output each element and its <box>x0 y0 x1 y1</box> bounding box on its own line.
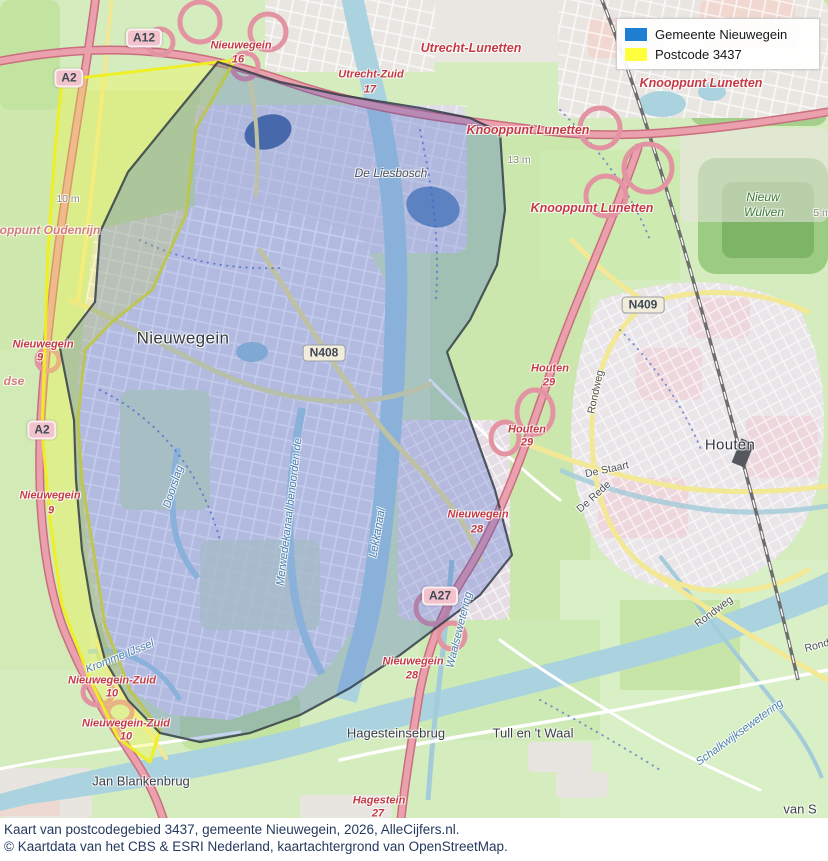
label-knooppunt-lunetten-1: Knooppunt Lunetten <box>640 77 763 90</box>
exit-nieuwegein-9b: Nieuwegein <box>19 491 80 502</box>
map-label-layer: A12A2A2A27N408N409Nieuwegein16Utrecht-Zu… <box>0 0 828 818</box>
label-knooppunt-lunetten-2: Knooppunt Lunetten <box>467 124 590 137</box>
map-canvas[interactable]: A12A2A2A27N408N409Nieuwegein16Utrecht-Zu… <box>0 0 828 818</box>
city-houten: Houten <box>705 438 755 453</box>
elev-5m: 5 m <box>813 208 828 219</box>
gemeente-color-swatch <box>625 28 647 41</box>
exit-utrecht-zuid: Utrecht-Zuid <box>338 70 403 81</box>
town-tull-en-t-waal: Tull en 't Waal <box>493 727 574 740</box>
map-attribution: Kaart van postcodegebied 3437, gemeente … <box>0 818 828 861</box>
exit-nieuwegein-9a: Nieuwegein <box>12 340 73 351</box>
exit-utrecht-zuid-nr: 17 <box>364 85 376 96</box>
shield-a27: A27 <box>422 587 458 606</box>
elev-13m: 13 m <box>507 155 530 166</box>
water-schalkwijksewetering: Schalkwijksewetering <box>694 698 785 768</box>
exit-houten-29b: Houten <box>508 425 546 436</box>
exit-nieuwegein-28b: Nieuwegein <box>382 657 443 668</box>
gemeente-legend-label: Gemeente Nieuwegein <box>655 27 787 42</box>
exit-nieuwegein-zuid-10a-nr: 10 <box>106 689 118 700</box>
exit-nieuwegein-28a: Nieuwegein <box>447 510 508 521</box>
exit-houten-29b-nr: 29 <box>521 438 533 449</box>
shield-a2-mid: A2 <box>27 421 56 440</box>
water-kromme-ijssel: Kromme IJssel <box>84 638 156 675</box>
exit-nieuwegein-9a-nr: 9 <box>37 353 43 364</box>
legend-row-postcode: Postcode 3437 <box>625 44 811 64</box>
label-knooppunt-oudenrijn: oppunt Oudenrijn <box>0 224 100 236</box>
postcode-legend-label: Postcode 3437 <box>655 47 742 62</box>
label-knooppunt-lunetten-3: Knooppunt Lunetten <box>531 202 654 215</box>
street-rondweg-1: Rondweg <box>586 369 605 415</box>
wood-nieuw-wulven-1: Nieuw <box>746 191 779 203</box>
map-legend: Gemeente Nieuwegein Postcode 3437 <box>616 18 820 70</box>
shield-n408: N408 <box>303 345 346 362</box>
wood-nieuw-wulven-2: Wulven <box>744 206 784 218</box>
town-hagesteinsebrug: Hagesteinsebrug <box>347 727 445 740</box>
water-doorslag: Doorslag <box>162 464 186 509</box>
water-waalsewetering: Waalsewetering <box>445 591 475 669</box>
elev-10m: 10 m <box>56 194 79 205</box>
water-merwedekanaal: Merwedekanaal benoorden de <box>275 438 304 587</box>
street-rondweg-2: Rondweg <box>693 594 735 629</box>
exit-nieuwegein-zuid-10b: Nieuwegein-Zuid <box>82 719 170 730</box>
postcode-color-swatch <box>625 48 647 61</box>
legend-row-gemeente: Gemeente Nieuwegein <box>625 24 811 44</box>
exit-nieuwegein-28a-nr: 28 <box>471 525 483 536</box>
label-utrecht-lunetten: Utrecht-Lunetten <box>421 42 522 55</box>
shield-n409: N409 <box>622 297 665 314</box>
exit-hagestein-27-nr: 27 <box>372 809 384 819</box>
alle-cijfers-postcode-map: A12A2A2A27N408N409Nieuwegein16Utrecht-Zu… <box>0 0 828 861</box>
exit-nieuwegein-28b-nr: 28 <box>406 671 418 682</box>
city-nieuwegein: Nieuwegein <box>137 330 230 347</box>
exit-houten-29a: Houten <box>531 364 569 375</box>
exit-nieuwegein-9b-nr: 9 <box>48 506 54 517</box>
exit-hagestein-27: Hagestein <box>353 796 406 807</box>
town-van-s-fragment: van S <box>783 803 816 816</box>
street-de-staart: De Staart <box>584 460 630 479</box>
street-rondweg-3: Rond <box>804 638 828 655</box>
town-jan-blankenbrug: Jan Blankenbrug <box>92 775 190 788</box>
exit-nieuwegein-16: Nieuwegein <box>210 41 271 52</box>
exit-nieuwegein-16-nr: 16 <box>232 55 244 66</box>
shield-a12: A12 <box>126 29 162 48</box>
suburb-de-liesbosch: De Liesbosch <box>355 167 428 179</box>
exit-nieuwegein-zuid-10b-nr: 10 <box>120 732 132 743</box>
exit-nieuwegein-zuid-10a: Nieuwegein-Zuid <box>68 676 156 687</box>
shield-a2-north: A2 <box>54 69 83 88</box>
attribution-line-1: Kaart van postcodegebied 3437, gemeente … <box>4 821 828 838</box>
exit-houten-29a-nr: 29 <box>543 378 555 389</box>
street-de-rede: De Rede <box>575 479 613 515</box>
label-dse-fragment: dse <box>4 375 25 387</box>
attribution-line-2: © Kaartdata van het CBS & ESRI Nederland… <box>4 838 828 855</box>
water-lekkanaal: Lekkanaal <box>368 507 388 558</box>
